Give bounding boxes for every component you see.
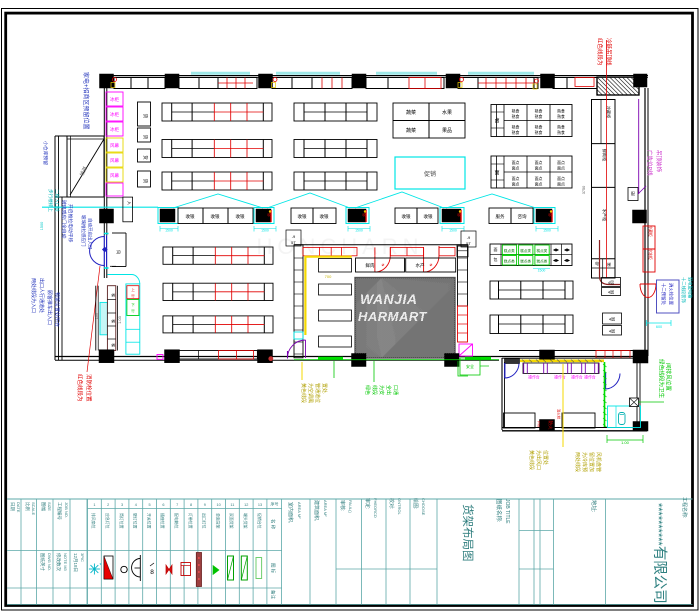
svg-text:插座位置: 插座位置 [160, 513, 165, 529]
svg-text:冷链吊顶线: 冷链吊顶线 [605, 38, 613, 66]
svg-text:熟食: 熟食 [512, 109, 520, 114]
svg-text:玻璃感应门全自动: 玻璃感应门全自动 [61, 200, 68, 239]
svg-text:面点: 面点 [512, 176, 520, 181]
svg-text:1500: 1500 [538, 269, 546, 273]
svg-text:CHOOSE: CHOOSE [421, 498, 426, 516]
svg-text:◀▶: ◀▶ [553, 247, 560, 252]
svg-text:工程名称:: 工程名称: [681, 497, 688, 518]
svg-text:梯: 梯 [111, 293, 116, 297]
svg-text:AREA M²: AREA M² [297, 502, 302, 519]
svg-text:NOTE M3: NOTE M3 [63, 553, 68, 572]
svg-text:十二预留处: 十二预留处 [660, 283, 667, 306]
svg-text:风机盘管: 风机盘管 [595, 452, 602, 472]
svg-text:熟食: 熟食 [512, 130, 520, 135]
svg-text:1500: 1500 [355, 229, 363, 233]
svg-text:8: 8 [190, 503, 192, 507]
svg-text:面点: 面点 [512, 182, 520, 187]
svg-text:12: 12 [244, 503, 248, 507]
svg-text:审定:: 审定: [364, 498, 371, 509]
svg-text:冷冻柜: 冷冻柜 [648, 248, 653, 260]
svg-text:消防栓位置: 消防栓位置 [85, 374, 93, 402]
svg-text:梯: 梯 [111, 319, 116, 323]
svg-text:4层: 4层 [608, 289, 614, 295]
svg-text:1500: 1500 [261, 229, 269, 233]
svg-text:10: 10 [216, 503, 220, 507]
svg-text:红色线段为: 红色线段为 [76, 374, 84, 402]
svg-text:图纸英寸: 图纸英寸 [39, 553, 46, 571]
svg-text:操作台: 操作台 [554, 375, 566, 380]
svg-text:为出风口: 为出风口 [535, 450, 542, 470]
svg-text:货: 货 [142, 114, 149, 119]
svg-text:4层: 4层 [609, 328, 615, 334]
svg-text:JOB NO.: JOB NO. [64, 502, 69, 518]
svg-text:糕点类: 糕点类 [504, 259, 515, 264]
svg-text:单面货架: 单面货架 [215, 513, 220, 529]
svg-text:序号: 序号 [271, 501, 279, 507]
svg-text:收银: 收银 [320, 213, 329, 220]
svg-text:PAUL(): PAUL() [348, 500, 353, 513]
svg-text:ONTROL: ONTROL [397, 498, 402, 515]
svg-text:收银: 收银 [186, 213, 195, 220]
svg-text:建筑面积,: 建筑面积, [313, 500, 320, 521]
svg-text:备注: 备注 [270, 590, 277, 599]
svg-text:收银: 收银 [424, 213, 433, 220]
svg-text:鲜肉柜: 鲜肉柜 [601, 149, 608, 162]
svg-text:1.00: 1.00 [621, 440, 630, 445]
svg-text:配: 配 [631, 191, 635, 196]
svg-text:糕点类: 糕点类 [537, 259, 548, 264]
svg-text:12月18日: 12月18日 [72, 553, 78, 572]
svg-text:两处线段为入口: 两处线段为入口 [30, 278, 37, 313]
svg-text:鲜肉: 鲜肉 [366, 262, 375, 269]
svg-text:面点: 面点 [535, 176, 543, 181]
svg-text:位置处: 位置处 [542, 450, 549, 465]
svg-text:排风扇位: 排风扇位 [91, 513, 96, 529]
svg-text:HONCHARN: HONCHARN [256, 234, 423, 259]
svg-text:熟食: 熟食 [557, 125, 565, 130]
svg-text:5: 5 [149, 503, 151, 507]
svg-text:壁灯位置: 壁灯位置 [133, 513, 138, 529]
svg-text:水果: 水果 [442, 109, 452, 116]
svg-text:应急灯位: 应急灯位 [105, 513, 110, 529]
svg-text:开关位置: 开关位置 [146, 513, 151, 529]
svg-text:面点: 面点 [512, 160, 520, 165]
svg-text:顾客推车出入口: 顾客推车出入口 [46, 290, 53, 325]
svg-text:HARMART: HARMART [358, 309, 428, 324]
svg-text:糕点类: 糕点类 [537, 248, 548, 253]
svg-text:1500: 1500 [40, 222, 44, 230]
svg-text:下: 下 [131, 303, 135, 307]
svg-text:促销台位: 促销台位 [257, 513, 262, 529]
svg-text:9: 9 [204, 503, 206, 507]
svg-text:面: 面 [494, 170, 499, 176]
svg-text:⌀: ⌀ [430, 262, 433, 267]
svg-text:熟食: 熟食 [535, 109, 543, 114]
svg-text:吊顶装饰: 吊顶装饰 [655, 150, 663, 173]
svg-text:地址:: 地址: [590, 500, 598, 513]
svg-text:上: 上 [131, 287, 135, 292]
svg-text:⌀: ⌀ [382, 262, 385, 267]
svg-text:3PIC: 3PIC [80, 553, 85, 562]
svg-text:面: 面 [494, 247, 498, 252]
svg-text:1500: 1500 [543, 229, 551, 233]
svg-text:梯: 梯 [111, 343, 116, 347]
svg-text:二楼入口处: 二楼入口处 [54, 189, 61, 212]
svg-text:熟食: 熟食 [557, 130, 565, 135]
svg-text:风幕: 风幕 [110, 157, 119, 164]
svg-text:700: 700 [325, 274, 332, 279]
svg-text:冰柜: 冰柜 [110, 111, 119, 118]
svg-text:咨询: 咨询 [518, 213, 527, 220]
svg-text:收银: 收银 [402, 213, 411, 220]
svg-text:FHEORCD: FHEORCD [373, 498, 378, 518]
svg-text:操作台: 操作台 [571, 375, 583, 380]
svg-text:行: 行 [131, 308, 135, 313]
svg-text:WANJIA: WANJIA [360, 291, 417, 307]
svg-text:蔬菜: 蔬菜 [406, 127, 416, 134]
svg-text:11: 11 [230, 503, 234, 507]
svg-text:熟食: 熟食 [535, 114, 543, 119]
svg-text:货: 货 [142, 155, 149, 160]
svg-text:SCALE: SCALE [31, 502, 36, 515]
svg-text:8: 8 [150, 569, 154, 576]
svg-text:绘图:: 绘图: [412, 498, 419, 509]
svg-text:水产柜: 水产柜 [601, 209, 608, 222]
svg-text:安全: 安全 [466, 363, 474, 369]
svg-text:消火栓: 消火栓 [557, 409, 562, 420]
svg-text:收: 收 [457, 212, 461, 217]
svg-text:室内面积,: 室内面积, [287, 502, 294, 523]
svg-text:为空调風: 为空调風 [307, 383, 314, 403]
svg-text:开启推拉电动平移: 开启推拉电动平移 [67, 204, 74, 243]
svg-text:600: 600 [656, 325, 662, 329]
svg-text:3: 3 [121, 503, 123, 507]
svg-text:收: 收 [362, 212, 366, 217]
svg-text:配电箱位: 配电箱位 [174, 513, 179, 529]
svg-text:2: 2 [107, 503, 109, 507]
svg-text:日期: 日期 [9, 502, 15, 511]
svg-text:十二线段装饰: 十二线段装饰 [680, 277, 687, 303]
svg-text:筒灯位置: 筒灯位置 [119, 513, 124, 529]
svg-text:熟食: 熟食 [557, 109, 565, 114]
svg-text:蔬菜: 蔬菜 [406, 109, 416, 116]
svg-text:卤: 卤 [494, 117, 499, 124]
svg-text:JOB TITLE: JOB TITLE [504, 499, 510, 524]
svg-text:风幕: 风幕 [110, 142, 119, 149]
svg-text:红色线段为: 红色线段为 [596, 38, 604, 66]
svg-text:面点: 面点 [535, 182, 543, 187]
svg-text:货: 货 [142, 135, 149, 140]
svg-text:为冷库预: 为冷库预 [581, 452, 588, 472]
svg-text:货架布局图: 货架布局图 [461, 504, 475, 562]
svg-text:电: 电 [595, 261, 599, 266]
svg-text:熟食: 熟食 [535, 130, 543, 135]
svg-text:名 称: 名 称 [270, 519, 277, 530]
svg-text:4: 4 [135, 503, 137, 507]
svg-text:面点: 面点 [512, 166, 520, 171]
svg-text:工程编号: 工程编号 [56, 502, 63, 520]
svg-text:冷藏柜: 冷藏柜 [605, 106, 612, 119]
svg-text:审核:: 审核: [339, 500, 346, 511]
svg-text:黄色线段: 黄色线段 [528, 450, 535, 470]
svg-text:自动开启出入口: 自动开启出入口 [87, 218, 94, 250]
svg-text:4层: 4层 [609, 316, 615, 322]
svg-text:线段: 线段 [371, 385, 378, 395]
svg-text:梯: 梯 [607, 262, 611, 267]
svg-text:熟食: 熟食 [535, 125, 543, 130]
svg-text:糕点类: 糕点类 [520, 248, 531, 253]
svg-text:4层: 4层 [608, 279, 614, 285]
svg-text:收银: 收银 [298, 213, 307, 220]
svg-text:家电+招商区预留位置: 家电+招商区预留位置 [82, 72, 90, 130]
svg-text:为安: 为安 [378, 385, 385, 395]
svg-text:DWG NO.: DWG NO. [47, 553, 52, 571]
svg-text:小仓库预留: 小仓库预留 [42, 141, 49, 165]
svg-text:水产: 水产 [416, 262, 425, 269]
svg-text:绿色线段为卫生: 绿色线段为卫生 [658, 359, 666, 399]
svg-text:包: 包 [494, 256, 498, 262]
svg-text:收银: 收银 [211, 213, 220, 220]
svg-text:灯带位置: 灯带位置 [188, 513, 193, 529]
svg-text:促销: 促销 [424, 170, 436, 178]
svg-text:图 标: 图 标 [270, 563, 277, 574]
svg-text:绿色: 绿色 [364, 385, 371, 395]
svg-text:收: 收 [267, 212, 271, 217]
svg-text:收银: 收银 [236, 213, 245, 220]
svg-text:5T: 5T [291, 240, 296, 245]
svg-text:7: 7 [176, 503, 178, 507]
svg-text:消火栓位置: 消火栓位置 [668, 283, 675, 306]
svg-text:服务: 服务 [496, 213, 505, 220]
svg-text:6: 6 [162, 503, 164, 507]
svg-text:广告位P线: 广告位P线 [646, 150, 654, 176]
svg-text:比例: 比例 [24, 502, 31, 511]
svg-text:**********有限公司: **********有限公司 [651, 503, 668, 604]
svg-text:◀▶: ◀▶ [564, 247, 571, 252]
svg-text:糕点类: 糕点类 [504, 248, 515, 253]
svg-text:熟食: 熟食 [512, 125, 520, 130]
svg-text:管通道位: 管通道位 [314, 383, 321, 403]
svg-text:-9: -9 [467, 235, 471, 240]
svg-text:步行楼梯上: 步行楼梯上 [47, 189, 54, 212]
svg-text:留位置加: 留位置加 [588, 452, 595, 472]
svg-text:端头货架: 端头货架 [243, 513, 248, 529]
svg-text:图幅: 图幅 [40, 502, 47, 511]
svg-text:熟食: 熟食 [557, 114, 565, 119]
svg-text:风幕: 风幕 [110, 172, 119, 179]
svg-text:DATE: DATE [16, 502, 21, 513]
svg-text:冷藏柜: 冷藏柜 [648, 225, 653, 237]
svg-text:玻璃推拉感应门: 玻璃推拉感应门 [80, 215, 87, 247]
svg-text:◀▶: ◀▶ [564, 258, 571, 263]
svg-text:FM: FM [537, 421, 542, 427]
svg-text:熟食: 熟食 [512, 114, 520, 119]
svg-text:13: 13 [258, 503, 262, 507]
svg-text:行: 行 [131, 293, 135, 298]
svg-text:面点: 面点 [535, 160, 543, 165]
svg-text:面点: 面点 [557, 160, 565, 165]
svg-text:修改数次: 修改数次 [55, 553, 62, 571]
svg-text:图纸名称:: 图纸名称: [495, 499, 503, 523]
svg-text:出口灯位: 出口灯位 [202, 513, 207, 529]
svg-text:面点: 面点 [557, 182, 565, 187]
svg-text:3750: 3750 [582, 186, 586, 194]
svg-text:操作台: 操作台 [584, 375, 596, 380]
svg-text:防火: 防火 [547, 421, 554, 430]
svg-text:*: * [100, 563, 102, 569]
svg-text:糕点类: 糕点类 [520, 259, 531, 264]
svg-text:1500: 1500 [449, 229, 457, 233]
svg-text:校对:: 校对: [388, 498, 395, 509]
svg-text:置处.: 置处. [321, 383, 328, 394]
svg-text:黄色线段: 黄色线段 [300, 383, 307, 403]
svg-text:预留位置处所在: 预留位置处所在 [54, 292, 61, 327]
svg-text:AREA M²: AREA M² [323, 500, 328, 517]
svg-text:冰柜: 冰柜 [110, 126, 119, 133]
svg-text:收: 收 [548, 212, 552, 217]
svg-text:1: 1 [93, 503, 95, 507]
svg-text:面点: 面点 [557, 166, 565, 171]
svg-text:口通: 口通 [392, 385, 399, 395]
svg-text:全出: 全出 [385, 385, 392, 395]
svg-text:两处线段: 两处线段 [574, 452, 581, 472]
svg-text:间排风位置: 间排风位置 [665, 363, 673, 391]
svg-text:1.03: 1.03 [118, 316, 122, 323]
svg-text:冰柜: 冰柜 [110, 96, 119, 103]
svg-text:入: 入 [127, 201, 132, 205]
svg-text:面点: 面点 [557, 176, 565, 181]
svg-text:双面货架: 双面货架 [229, 513, 234, 529]
svg-text:果品: 果品 [442, 128, 452, 134]
svg-text:货: 货 [142, 179, 149, 184]
svg-text:操作台: 操作台 [528, 375, 540, 380]
svg-text:1500: 1500 [165, 229, 173, 233]
svg-text:200: 200 [95, 313, 99, 319]
svg-text:◀▶: ◀▶ [553, 258, 560, 263]
svg-text:面点: 面点 [535, 166, 543, 171]
svg-text:SIZE: SIZE [47, 502, 52, 511]
svg-text:弱电配电箱: 弱电配电箱 [687, 277, 694, 299]
svg-text:风: 风 [116, 250, 121, 254]
svg-text:出口人行通道处: 出口人行通道处 [38, 278, 45, 313]
